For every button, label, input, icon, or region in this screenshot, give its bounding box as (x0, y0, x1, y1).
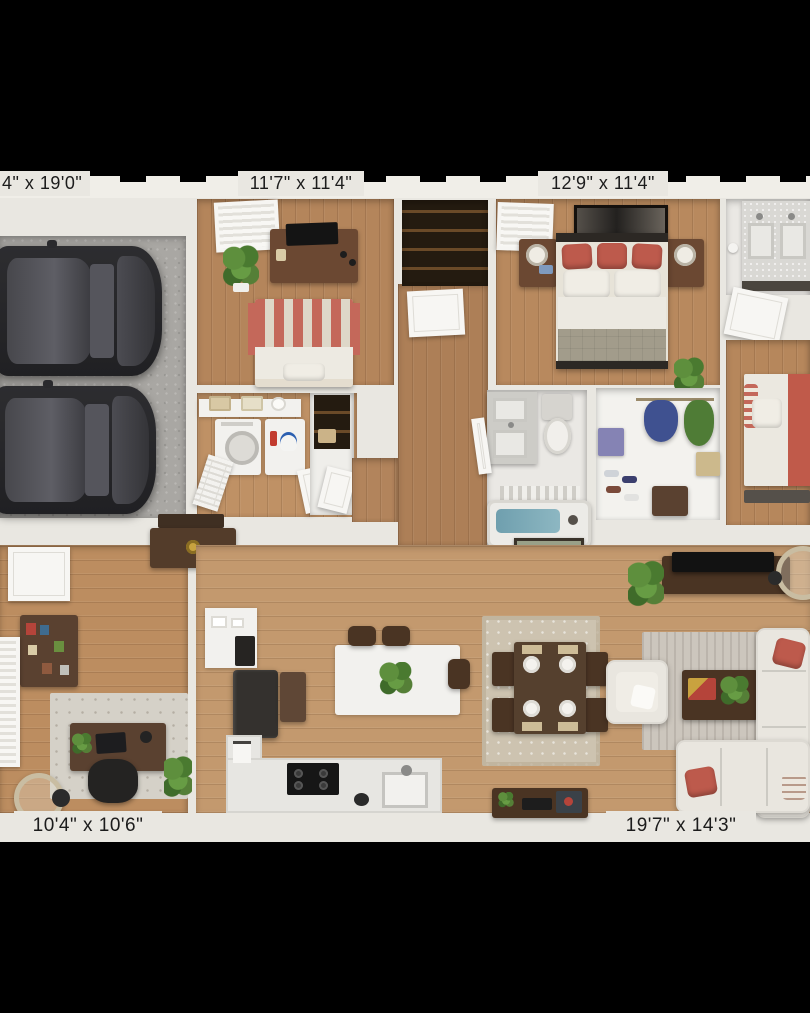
dining-chair (584, 652, 608, 686)
car-roof-glass (5, 398, 89, 503)
bed (744, 374, 810, 486)
cushion-seam (762, 670, 806, 672)
floor-plan-scene: 4" x 19'0" 11'7" x 11'4" 12'9" x 11'4" 1… (0, 0, 810, 1013)
room-bedroom-3 (726, 340, 810, 525)
basket (209, 396, 231, 411)
storage-box-purple (598, 428, 624, 456)
table-lamp-icon (526, 244, 548, 266)
placemat (558, 722, 578, 731)
bleach-jug (280, 432, 297, 451)
storage-box-tan (696, 452, 720, 476)
lamp-base (52, 789, 70, 807)
window (0, 637, 20, 767)
utility-cabinet (265, 419, 305, 475)
room-bedroom-2 (197, 199, 394, 385)
speaker (349, 259, 356, 266)
plate (523, 656, 540, 673)
bed-bench (744, 490, 810, 503)
plant-icon (164, 755, 192, 801)
blanket-drape-right (352, 303, 360, 355)
kettle (354, 793, 369, 806)
faucet-icon (508, 422, 514, 428)
room-garage (0, 236, 186, 518)
burner (319, 781, 328, 790)
books (42, 663, 52, 674)
dimension-label-master-bedroom: 12'9" x 11'4" (538, 171, 668, 196)
desk-plant-icon (72, 733, 92, 755)
hanging-clothes-blue (644, 400, 678, 442)
kitchen-cabinet (280, 672, 306, 722)
kitchen-island (335, 645, 460, 715)
plant-icon (628, 560, 664, 610)
decor-item (564, 797, 573, 806)
pantry (205, 608, 257, 668)
tub-faucet-icon (568, 515, 578, 525)
desk-lamp-icon (140, 731, 152, 743)
bed (556, 233, 668, 369)
burner (294, 781, 303, 790)
red-pillow (561, 243, 592, 270)
sink (780, 223, 806, 259)
decor-tray (556, 791, 582, 813)
coral-throw (788, 374, 810, 486)
media-bench (492, 788, 588, 818)
plate (559, 700, 576, 717)
laptop (95, 732, 126, 754)
car-windshield (90, 264, 114, 358)
shoes (624, 494, 639, 501)
bed-sheet (558, 297, 666, 331)
kitchen-sink (382, 772, 428, 808)
faucet-icon (756, 213, 763, 220)
table-lamp-icon (674, 244, 696, 266)
office-chair (88, 759, 138, 803)
plate (559, 656, 576, 673)
office-door (8, 547, 70, 601)
armchair (606, 660, 668, 724)
room-bathroom-double-vanity (726, 199, 810, 295)
notebook (539, 265, 553, 274)
room-bathroom-main (487, 390, 587, 545)
nightstand-right (666, 239, 704, 287)
coffee-maker (233, 741, 251, 763)
pillow (614, 270, 661, 298)
storage-box (318, 429, 336, 443)
bed (255, 299, 353, 387)
dimension-label-office: 10'4" x 10'6" (14, 811, 162, 840)
pillow (283, 363, 325, 381)
refrigerator (233, 670, 278, 738)
placemat (522, 645, 542, 654)
coffee-table (682, 670, 758, 720)
hanging-clothes-green (684, 400, 714, 446)
dimension-label-garage: 4" x 19'0" (0, 171, 90, 196)
car-1 (0, 246, 162, 376)
towel-ring (728, 243, 738, 253)
laundry-closet (310, 393, 354, 515)
candles (276, 249, 286, 261)
room-office (0, 545, 188, 813)
striped-pillow (782, 774, 806, 800)
dresser (270, 229, 358, 283)
car-mirror (43, 380, 53, 388)
bar-stool (348, 626, 376, 646)
toilet-bowl (544, 418, 571, 454)
dimension-label-bedroom-2: 11'7" x 11'4" (238, 171, 364, 196)
pantry-box (211, 616, 227, 628)
vanity-cabinet (742, 281, 810, 291)
faucet-icon (788, 213, 795, 220)
placemat (522, 722, 542, 731)
faucet-icon (401, 765, 412, 776)
toilet-tank (542, 394, 572, 420)
cooktop (287, 763, 339, 795)
louvered-door (193, 454, 234, 511)
toilet (539, 394, 575, 456)
basket (241, 396, 263, 411)
room-walk-in-closet (596, 388, 720, 520)
soap-jar (271, 397, 286, 411)
sink (748, 223, 774, 259)
detergent-bottle (270, 431, 277, 446)
red-pillow (771, 637, 807, 670)
headboard (556, 233, 668, 242)
pillow (752, 398, 782, 428)
red-pillow (597, 243, 627, 269)
tv (286, 222, 339, 246)
shoes (604, 470, 619, 477)
books (40, 625, 49, 635)
dining-chair (492, 652, 516, 686)
books (28, 645, 37, 655)
bar-stool (382, 626, 410, 646)
throw-blanket (630, 684, 656, 710)
room-living-open (196, 545, 810, 813)
roof-edge-shadow (0, 176, 810, 182)
hall-closet (402, 200, 488, 286)
tub-water (496, 509, 560, 533)
cushion-seam (766, 748, 768, 806)
bookcase (20, 615, 78, 687)
dining-chair (584, 698, 608, 732)
cushion-seam (762, 726, 806, 728)
shoes (622, 476, 637, 483)
car-hood (117, 256, 155, 365)
bar-stool (448, 659, 470, 689)
car-windshield (85, 404, 109, 496)
burner (294, 769, 303, 778)
placemat (558, 645, 578, 654)
shoes (606, 486, 621, 493)
entry-wall-art (158, 514, 224, 528)
island-plant-icon (379, 662, 413, 696)
hall-closet-door (407, 289, 465, 338)
dimension-label-living-room: 19'7" x 14'3" (606, 811, 756, 840)
sink (493, 398, 527, 422)
laundry-shelf (199, 399, 301, 417)
comforter (558, 329, 666, 361)
car-mirror (47, 240, 57, 248)
car-2 (0, 386, 156, 514)
footboard (556, 361, 668, 369)
table-plant-icon (720, 676, 750, 706)
vanity (487, 392, 537, 464)
hallway-patch (352, 458, 398, 522)
cushion-seam (720, 748, 722, 806)
washer-controls (221, 422, 253, 426)
pillow (563, 270, 610, 298)
lamp-base (768, 571, 782, 585)
car-hood (112, 396, 149, 504)
pantry-box (231, 618, 244, 628)
plant-pot (233, 283, 249, 292)
nightstand-left (519, 239, 557, 287)
striped-blanket (255, 299, 353, 347)
closet-dresser (652, 486, 688, 516)
car-roof-glass (7, 258, 93, 365)
sink (493, 430, 527, 458)
room-master-bedroom (496, 199, 720, 385)
dining-chair (492, 698, 516, 732)
sofa-section (676, 740, 810, 813)
books (60, 665, 69, 675)
burner (319, 769, 328, 778)
bench-plant-icon (498, 792, 514, 808)
books (54, 641, 64, 652)
speaker (340, 251, 347, 258)
plate (523, 700, 540, 717)
red-pillow (684, 766, 718, 799)
closet-door (317, 466, 356, 514)
red-pillow (631, 243, 662, 270)
dining-table (514, 642, 586, 734)
washer-door (225, 431, 259, 465)
microwave (235, 636, 255, 666)
books (26, 623, 36, 635)
tv (672, 552, 774, 572)
double-vanity (742, 201, 810, 289)
magazine (688, 678, 716, 700)
remote-set (522, 798, 552, 810)
